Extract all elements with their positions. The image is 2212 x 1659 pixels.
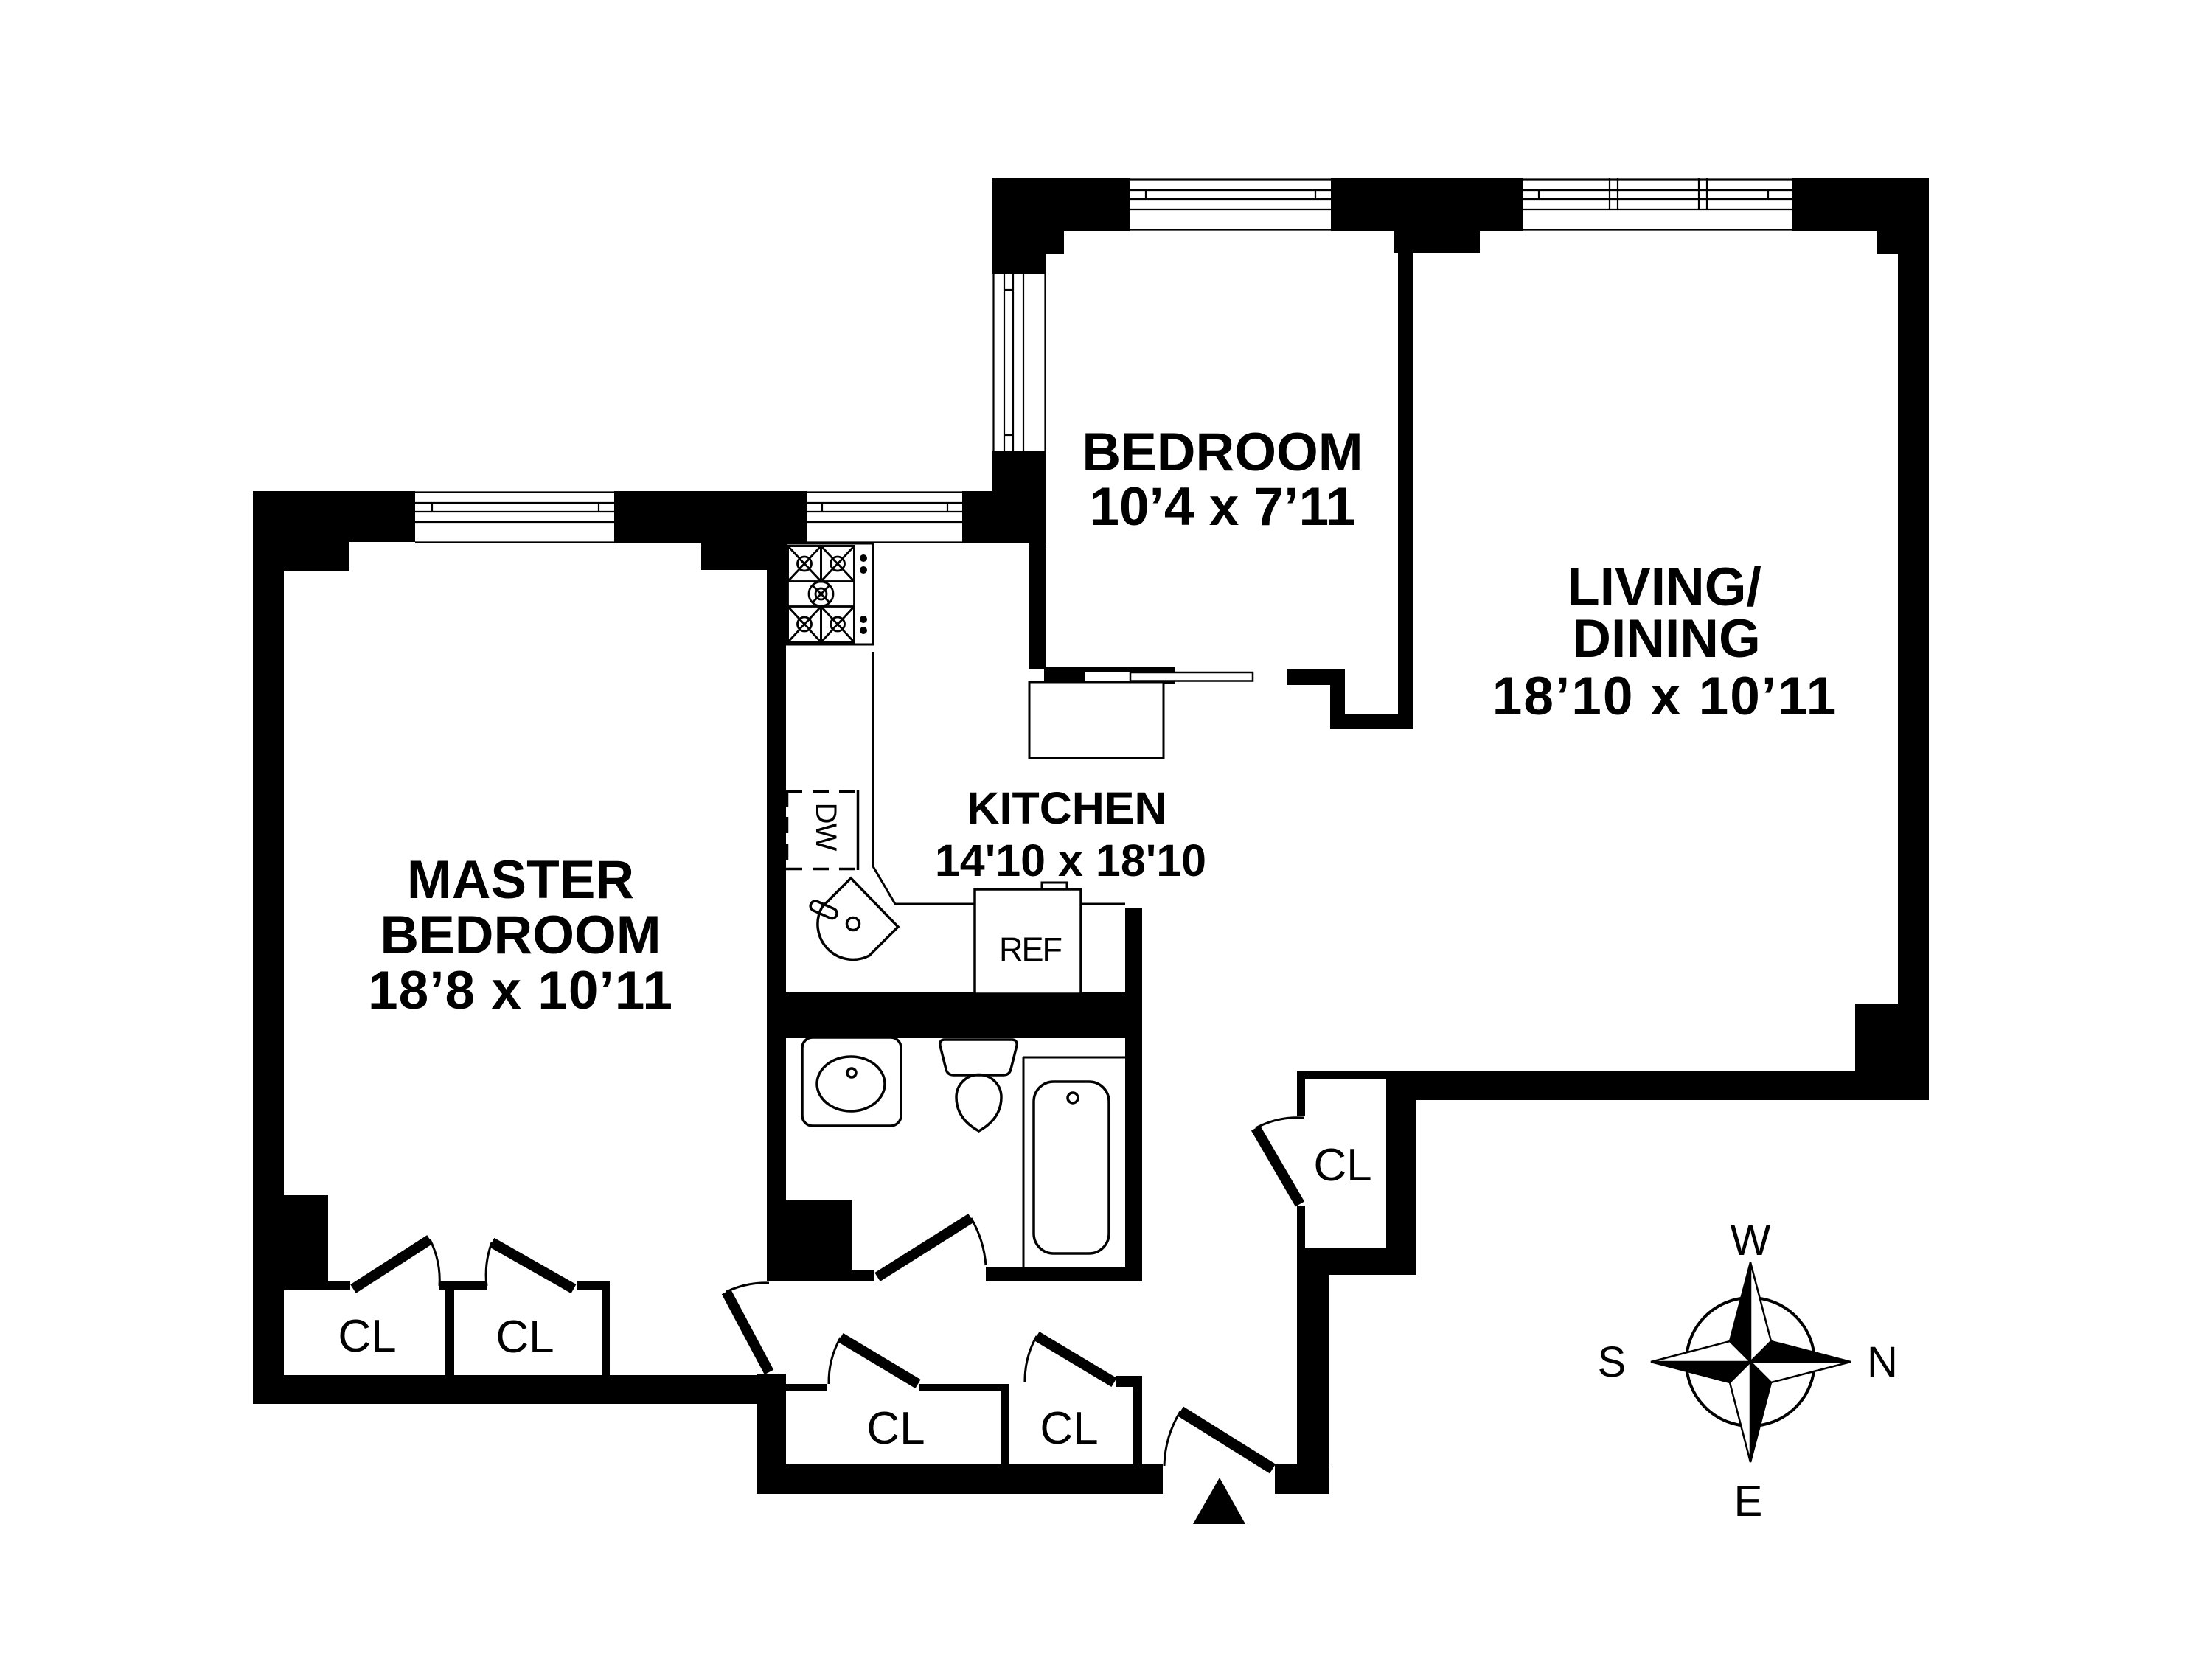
svg-text:BEDROOM: BEDROOM	[1082, 422, 1363, 482]
svg-text:S: S	[1598, 1338, 1627, 1386]
svg-text:LIVING/: LIVING/	[1567, 557, 1761, 617]
svg-text:REF: REF	[999, 931, 1062, 968]
svg-text:CL: CL	[338, 1311, 396, 1362]
svg-text:18’10 x 10’11: 18’10 x 10’11	[1492, 667, 1838, 726]
svg-text:E: E	[1734, 1478, 1763, 1526]
svg-text:10’4 x 7’11: 10’4 x 7’11	[1089, 477, 1355, 537]
svg-text:CL: CL	[866, 1403, 925, 1454]
svg-text:N: N	[1867, 1338, 1898, 1386]
svg-text:CL: CL	[1040, 1403, 1098, 1454]
svg-text:18’8 x 10’11: 18’8 x 10’11	[368, 961, 673, 1020]
svg-text:CL: CL	[1313, 1140, 1371, 1191]
svg-text:DINING: DINING	[1572, 609, 1761, 669]
svg-text:KITCHEN: KITCHEN	[967, 783, 1166, 833]
svg-text:W: W	[1731, 1217, 1771, 1265]
svg-text:CL: CL	[495, 1312, 554, 1363]
svg-text:MASTER: MASTER	[407, 850, 634, 910]
svg-text:14'10 x 18'10: 14'10 x 18'10	[935, 835, 1206, 886]
svg-text:BEDROOM: BEDROOM	[380, 905, 661, 965]
svg-text:DW: DW	[810, 803, 842, 852]
